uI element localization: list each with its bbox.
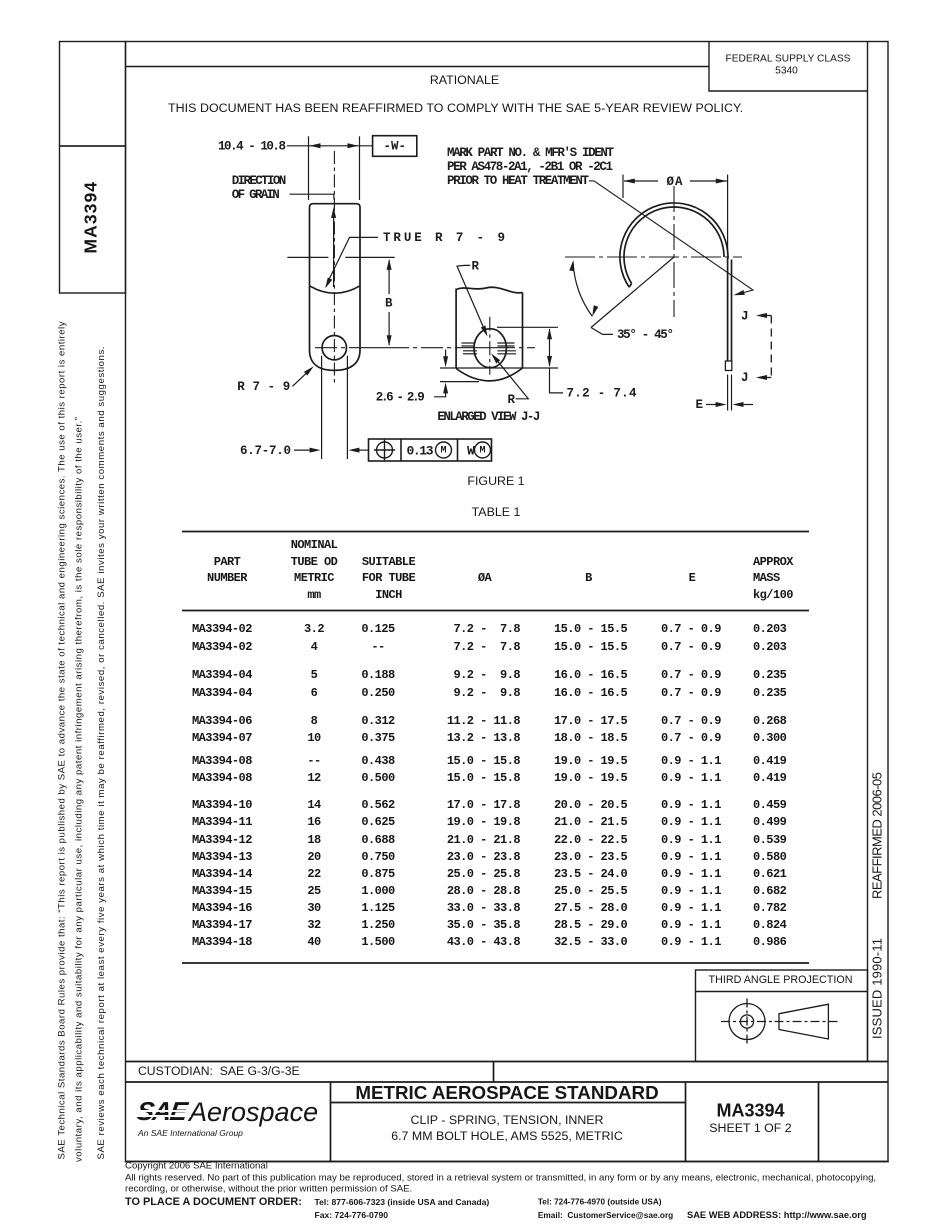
svg-text:ENLARGED VIEW J-J: ENLARGED VIEW J-J [437,410,540,424]
svg-text:DIRECTION: DIRECTION [232,174,286,188]
svg-text:M: M [440,445,446,456]
svg-text:35° - 45°: 35° - 45° [617,328,674,342]
svg-text:7.2 - 7.4: 7.2 - 7.4 [567,387,637,401]
svg-text:R: R [508,393,516,407]
svg-text:2.6 - 2.9: 2.6 - 2.9 [376,390,425,404]
svg-text:SAE reviews each technical rep: SAE reviews each technical report at lea… [96,347,107,1160]
svg-text:M: M [479,445,485,456]
svg-text:E: E [696,398,704,412]
svg-text:SAE Technical Standards Board: SAE Technical Standards Board Rules prov… [57,321,68,1159]
svg-text:6.7-7.0: 6.7-7.0 [240,444,291,458]
svg-text:0.13: 0.13 [407,443,434,458]
svg-text:TRUE R 7 - 9: TRUE R 7 - 9 [383,231,505,245]
svg-text:-W-: -W- [383,140,406,154]
svg-text:R: R [472,259,480,273]
svg-text:OF GRAIN: OF GRAIN [232,188,280,202]
svg-text:MA3394: MA3394 [81,182,101,254]
svg-text:REAFFIRMED 2006-05: REAFFIRMED 2006-05 [870,772,885,899]
svg-text:MARK PART NO. & MFR'S IDENT: MARK PART NO. & MFR'S IDENT [447,146,614,160]
svg-text:R 7 - 9: R 7 - 9 [237,380,290,394]
svg-text:voluntary, and its applicabili: voluntary, and its applicability and sui… [74,417,85,1162]
svg-text:10.4 - 10.8: 10.4 - 10.8 [218,140,286,154]
svg-text:PRIOR TO HEAT TREATMENT: PRIOR TO HEAT TREATMENT [447,174,589,188]
svg-text:J: J [741,371,749,385]
svg-text:W: W [467,443,475,458]
svg-text:J: J [741,309,749,323]
svg-text:B: B [385,297,393,311]
svg-text:PER AS478-2A1, -2B1 OR -2C1: PER AS478-2A1, -2B1 OR -2C1 [447,160,613,174]
svg-text:ISSUED 1990-11: ISSUED 1990-11 [870,938,885,1039]
svg-text:ØA: ØA [667,175,683,189]
